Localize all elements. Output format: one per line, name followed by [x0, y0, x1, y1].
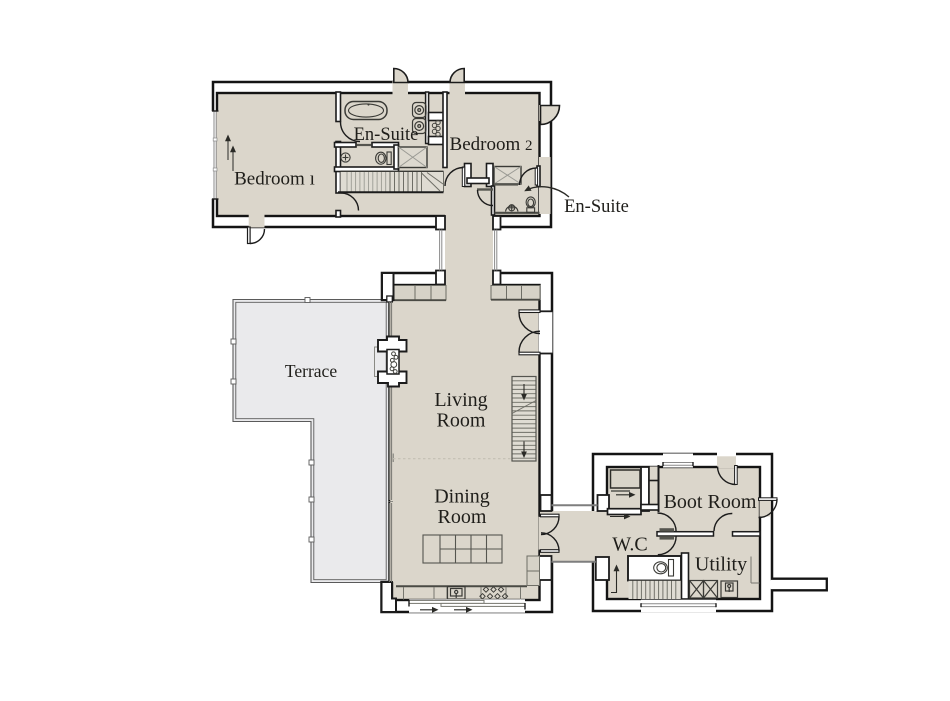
svg-text:Utility: Utility [695, 554, 747, 576]
svg-text:Room: Room [437, 410, 486, 432]
svg-text:Bedroom ı: Bedroom ı [234, 169, 315, 190]
svg-text:Living: Living [434, 389, 487, 411]
svg-text:Bedroom 2: Bedroom 2 [450, 134, 533, 155]
svg-text:En-Suite: En-Suite [564, 197, 629, 217]
svg-text:Boot Room: Boot Room [664, 491, 757, 513]
svg-text:Room: Room [438, 506, 487, 528]
svg-text:En-Suite: En-Suite [354, 125, 419, 145]
svg-text:W.C: W.C [612, 534, 647, 556]
svg-text:Dining: Dining [434, 486, 490, 508]
svg-text:Terrace: Terrace [285, 361, 337, 381]
